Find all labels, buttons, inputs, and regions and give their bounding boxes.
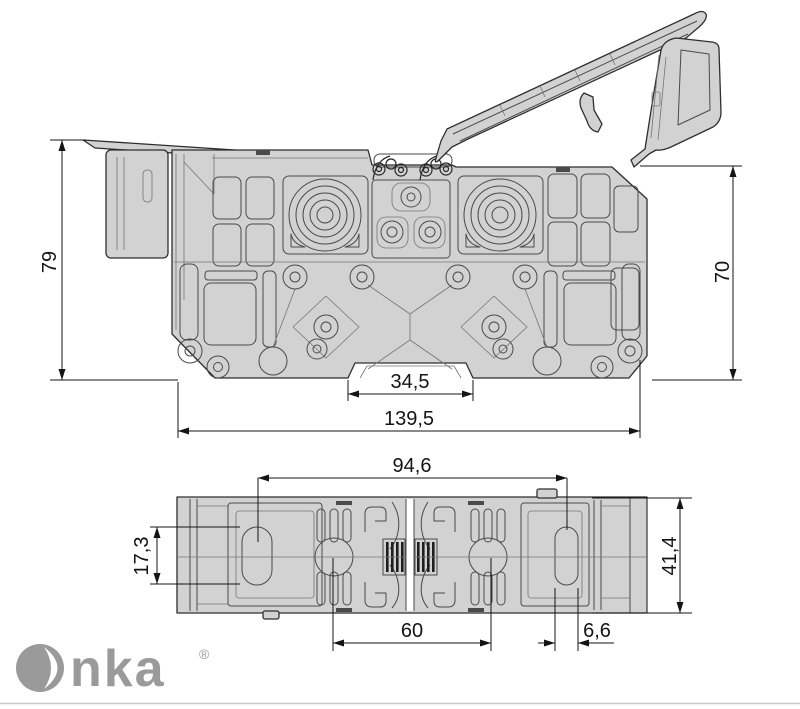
dim-label-60: 60 (401, 620, 423, 642)
dim-label-6-6: 6,6 (583, 620, 611, 642)
dimension-front-height-right: 70 (640, 166, 742, 380)
dim-label-34-5: 34,5 (391, 371, 430, 393)
front-body (172, 150, 647, 378)
front-cover-open (435, 12, 721, 168)
top-tab (537, 489, 557, 498)
dim-label-139-5: 139,5 (384, 408, 434, 430)
registered-trademark: ® (199, 646, 210, 662)
dimension-rail-notch-width: 34,5 (348, 371, 473, 401)
onka-logo-text: nka (70, 640, 166, 698)
front-view: 79 70 34,5 139,5 (39, 12, 742, 439)
dim-label-70: 70 (712, 261, 734, 283)
dim-label-17-3: 17,3 (131, 537, 153, 576)
dim-label-94-6: 94,6 (393, 455, 432, 477)
cover-latch-hook (580, 93, 602, 132)
top-view: 94,6 17,3 41,4 60 (131, 455, 692, 651)
technical-drawing: 79 70 34,5 139,5 (0, 0, 800, 709)
onka-logo: nka ® (16, 640, 210, 698)
dim-label-79: 79 (39, 251, 61, 273)
dim-label-41-4: 41,4 (659, 537, 681, 576)
bottom-tab (263, 611, 279, 619)
drawing-sheet: 79 70 34,5 139,5 (0, 0, 800, 709)
